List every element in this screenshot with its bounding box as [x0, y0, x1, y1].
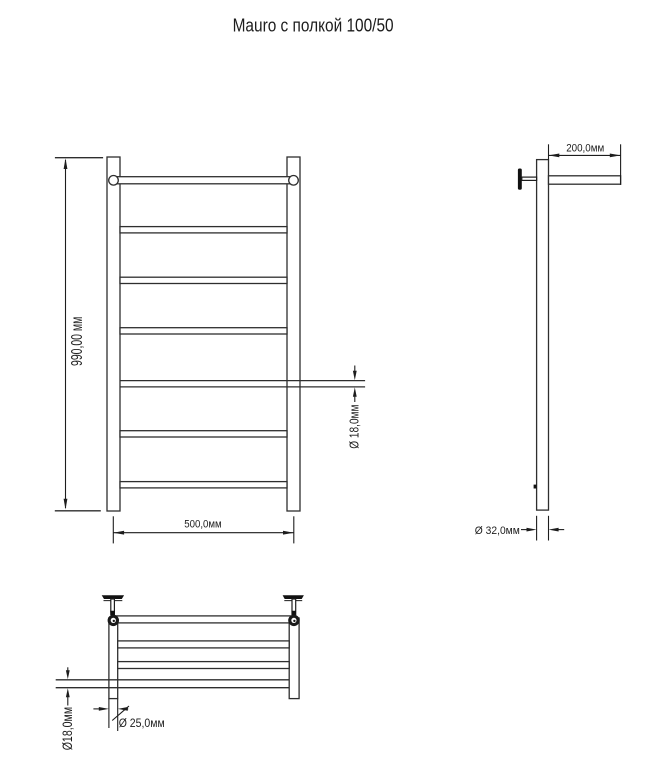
svg-text:Ø 18,0мм: Ø 18,0мм	[347, 405, 361, 449]
svg-text:200,0мм: 200,0мм	[566, 142, 604, 154]
svg-text:990,00 мм: 990,00 мм	[69, 317, 86, 366]
svg-text:Ø 32,0мм: Ø 32,0мм	[475, 525, 520, 537]
svg-text:Ø 25,0мм: Ø 25,0мм	[119, 718, 165, 730]
svg-text:500,0мм: 500,0мм	[184, 519, 222, 531]
svg-text:Ø18,0мм: Ø18,0мм	[59, 707, 75, 750]
svg-text:Mauro с полкой 100/50: Mauro с полкой 100/50	[233, 15, 394, 35]
